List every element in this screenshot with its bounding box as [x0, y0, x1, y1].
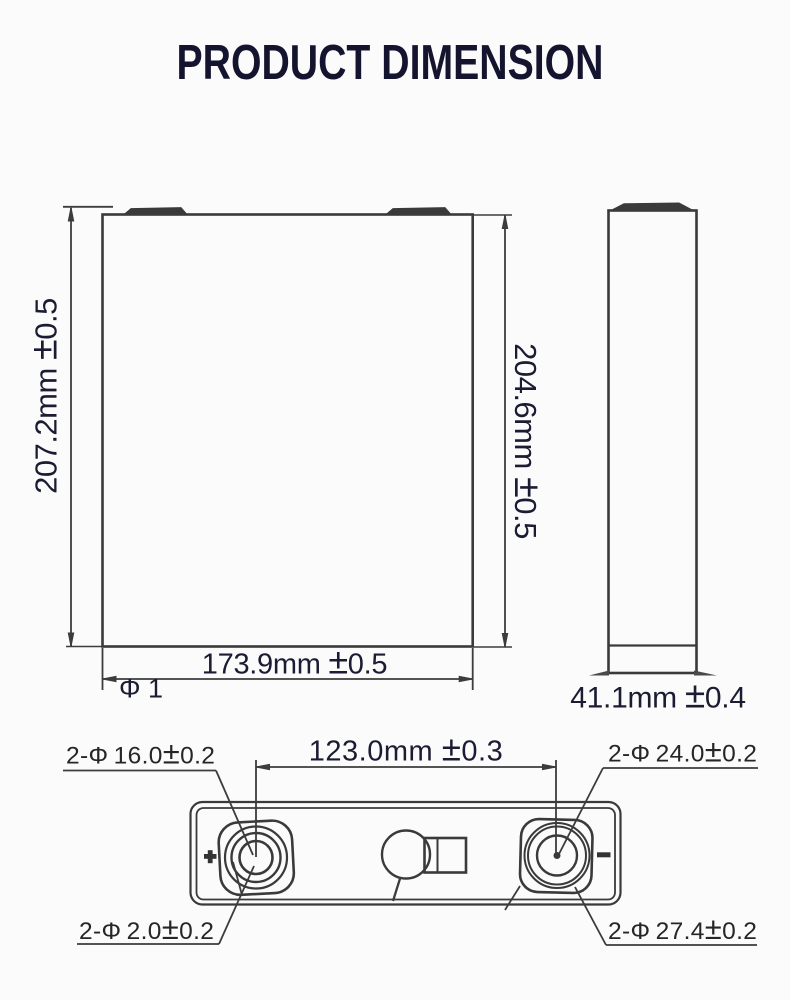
svg-text:PRODUCT DIMENSION: PRODUCT DIMENSION	[177, 35, 604, 90]
svg-text:123.0mm ±0.3: 123.0mm ±0.3	[309, 730, 504, 769]
svg-text:Φ 1: Φ 1	[119, 674, 163, 704]
svg-text:41.1mm ±0.4: 41.1mm ±0.4	[570, 675, 745, 716]
svg-text:204.6mm ±0.5: 204.6mm ±0.5	[506, 343, 548, 539]
svg-text:207.2mm ±0.5: 207.2mm ±0.5	[24, 298, 66, 494]
